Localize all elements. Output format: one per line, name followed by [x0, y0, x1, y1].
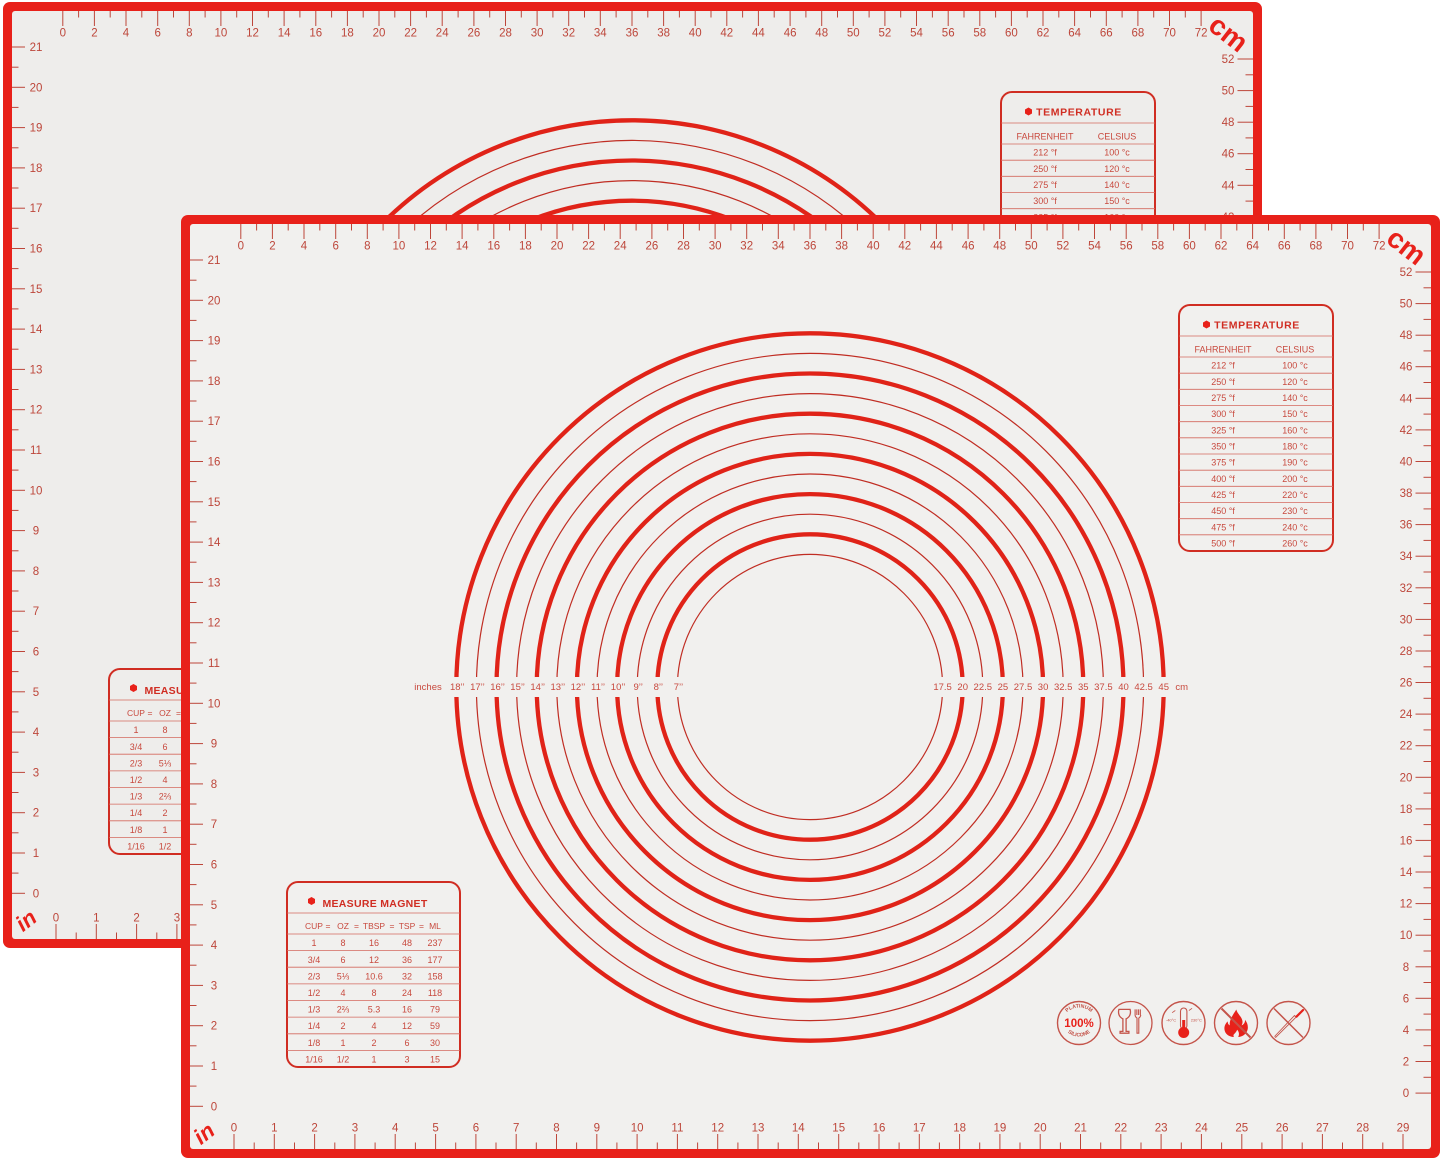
svg-text:32: 32 [402, 971, 412, 981]
svg-text:12: 12 [424, 241, 437, 253]
svg-text:14: 14 [1400, 867, 1413, 879]
svg-text:27: 27 [1316, 1123, 1329, 1135]
svg-text:0: 0 [53, 913, 59, 925]
svg-text:4: 4 [211, 940, 218, 952]
svg-text:325 °f: 325 °f [1211, 425, 1235, 435]
svg-text:6: 6 [1403, 993, 1409, 1005]
svg-text:5.3: 5.3 [368, 1005, 381, 1015]
svg-text:46: 46 [962, 241, 975, 253]
svg-text:14’’: 14’’ [530, 682, 545, 693]
svg-text:26: 26 [646, 241, 659, 253]
svg-text:20: 20 [208, 295, 221, 307]
svg-text:16: 16 [208, 457, 221, 469]
svg-text:58: 58 [1151, 241, 1164, 253]
svg-text:TEMPERATURE: TEMPERATURE [1214, 320, 1300, 332]
svg-text:3/4: 3/4 [130, 742, 143, 752]
svg-text:1/2: 1/2 [159, 842, 172, 852]
svg-text:36: 36 [1400, 520, 1413, 532]
svg-text:64: 64 [1068, 28, 1081, 40]
svg-text:18: 18 [1400, 804, 1413, 816]
svg-text:17: 17 [913, 1123, 926, 1135]
svg-text:10: 10 [208, 698, 221, 710]
svg-text:18’’: 18’’ [450, 682, 465, 693]
svg-text:6: 6 [154, 28, 160, 40]
svg-text:230 °c: 230 °c [1282, 506, 1308, 516]
svg-text:42: 42 [720, 28, 733, 40]
svg-text:8: 8 [186, 28, 192, 40]
svg-text:375 °f: 375 °f [1211, 458, 1235, 468]
svg-text:48: 48 [993, 241, 1006, 253]
svg-text:54: 54 [910, 28, 923, 40]
svg-text:2: 2 [269, 241, 275, 253]
svg-text:16: 16 [873, 1123, 886, 1135]
svg-text:240 °c: 240 °c [1282, 522, 1308, 532]
svg-text:66: 66 [1278, 241, 1291, 253]
svg-text:32: 32 [740, 241, 753, 253]
svg-text:44: 44 [930, 241, 943, 253]
svg-text:28: 28 [1356, 1123, 1369, 1135]
svg-text:6: 6 [404, 1038, 409, 1048]
svg-text:0: 0 [33, 888, 39, 900]
svg-text:38: 38 [657, 28, 670, 40]
svg-text:11: 11 [30, 445, 42, 457]
svg-text:8: 8 [162, 725, 167, 735]
svg-text:3: 3 [174, 913, 180, 925]
svg-text:9: 9 [211, 739, 217, 751]
svg-text:FAHRENHEIT: FAHRENHEIT [1016, 132, 1074, 142]
svg-text:36: 36 [402, 955, 412, 965]
svg-text:120 °c: 120 °c [1104, 164, 1130, 174]
svg-text:58: 58 [973, 28, 986, 40]
svg-text:1/8: 1/8 [308, 1038, 321, 1048]
svg-text:13: 13 [30, 364, 43, 376]
svg-text:6: 6 [473, 1123, 479, 1135]
svg-text:-40°C: -40°C [1166, 1018, 1176, 1023]
svg-text:10: 10 [1400, 930, 1413, 942]
svg-text:140 °c: 140 °c [1104, 180, 1130, 190]
svg-text:30: 30 [1400, 614, 1413, 626]
svg-text:inches: inches [414, 682, 442, 693]
svg-text:12: 12 [208, 618, 221, 630]
svg-text:160 °c: 160 °c [1282, 425, 1308, 435]
svg-text:16’’: 16’’ [490, 682, 505, 693]
svg-text:=: = [354, 921, 359, 931]
svg-text:450 °f: 450 °f [1211, 506, 1235, 516]
svg-text:5: 5 [211, 900, 217, 912]
svg-text:17’’: 17’’ [470, 682, 485, 693]
svg-text:12’’: 12’’ [571, 682, 586, 693]
svg-text:8: 8 [340, 938, 345, 948]
svg-text:25: 25 [998, 682, 1009, 693]
svg-text:13: 13 [208, 577, 221, 589]
svg-text:5: 5 [33, 687, 39, 699]
svg-text:2: 2 [133, 913, 139, 925]
svg-text:7’’: 7’’ [674, 682, 683, 693]
svg-text:1/2: 1/2 [130, 775, 143, 785]
svg-text:8: 8 [33, 566, 39, 578]
svg-text:50: 50 [847, 28, 860, 40]
svg-text:68: 68 [1310, 241, 1323, 253]
svg-text:1: 1 [371, 1055, 376, 1065]
svg-text:24: 24 [402, 988, 412, 998]
svg-text:37.5: 37.5 [1094, 682, 1113, 693]
svg-text:48: 48 [815, 28, 828, 40]
svg-text:38: 38 [1400, 488, 1413, 500]
svg-text:500 °f: 500 °f [1211, 539, 1235, 549]
svg-text:200 °c: 200 °c [1282, 474, 1308, 484]
svg-text:10: 10 [215, 28, 228, 40]
svg-text:48: 48 [1222, 117, 1235, 129]
svg-text:34: 34 [772, 241, 785, 253]
svg-text:1/2: 1/2 [308, 988, 321, 998]
svg-text:cm: cm [1175, 682, 1188, 693]
svg-text:46: 46 [1222, 149, 1235, 161]
svg-text:24: 24 [614, 241, 627, 253]
svg-text:=: = [390, 921, 395, 931]
svg-text:28: 28 [1400, 646, 1413, 658]
svg-text:12: 12 [30, 405, 43, 417]
svg-text:180 °c: 180 °c [1282, 442, 1308, 452]
svg-text:56: 56 [1120, 241, 1133, 253]
svg-text:36: 36 [804, 241, 817, 253]
svg-text:7: 7 [211, 819, 217, 831]
svg-text:34: 34 [594, 28, 607, 40]
svg-text:0: 0 [211, 1101, 217, 1113]
svg-text:10’’: 10’’ [611, 682, 626, 693]
svg-text:230°C: 230°C [1191, 1018, 1202, 1023]
svg-text:30: 30 [1038, 682, 1049, 693]
svg-text:7: 7 [33, 606, 39, 618]
svg-text:62: 62 [1037, 28, 1050, 40]
svg-text:CELSIUS: CELSIUS [1276, 345, 1315, 355]
svg-text:6: 6 [211, 860, 217, 872]
svg-text:64: 64 [1246, 241, 1259, 253]
svg-text:32: 32 [562, 28, 575, 40]
svg-text:475 °f: 475 °f [1211, 522, 1235, 532]
svg-text:4: 4 [301, 241, 308, 253]
svg-text:42: 42 [1400, 425, 1413, 437]
svg-text:1: 1 [162, 825, 167, 835]
svg-text:14: 14 [456, 241, 469, 253]
svg-text:8’’: 8’’ [654, 682, 663, 693]
svg-text:26: 26 [1276, 1123, 1289, 1135]
svg-text:8: 8 [553, 1123, 559, 1135]
svg-text:18: 18 [953, 1123, 966, 1135]
svg-text:40: 40 [867, 241, 880, 253]
svg-text:24: 24 [1195, 1123, 1208, 1135]
svg-text:1/3: 1/3 [130, 792, 143, 802]
svg-text:68: 68 [1132, 28, 1145, 40]
svg-text:275 °f: 275 °f [1033, 180, 1057, 190]
svg-text:79: 79 [430, 1005, 440, 1015]
svg-text:50: 50 [1222, 86, 1235, 98]
svg-text:29: 29 [1397, 1123, 1410, 1135]
svg-text:52: 52 [1057, 241, 1070, 253]
svg-text:CUP: CUP [305, 921, 323, 931]
svg-text:40: 40 [689, 28, 702, 40]
svg-text:2/3: 2/3 [308, 971, 321, 981]
svg-text:5: 5 [432, 1123, 438, 1135]
svg-text:10: 10 [631, 1123, 644, 1135]
svg-text:3/4: 3/4 [308, 955, 321, 965]
svg-text:19: 19 [208, 336, 221, 348]
svg-text:100 °c: 100 °c [1282, 361, 1308, 371]
svg-text:140 °c: 140 °c [1282, 393, 1308, 403]
svg-text:18: 18 [30, 163, 43, 175]
svg-text:27.5: 27.5 [1014, 682, 1033, 693]
svg-text:11: 11 [671, 1123, 683, 1135]
svg-text:17: 17 [30, 203, 43, 215]
svg-text:9: 9 [594, 1123, 600, 1135]
svg-text:38: 38 [835, 241, 848, 253]
svg-text:0: 0 [231, 1123, 237, 1135]
svg-text:TBSP: TBSP [363, 921, 386, 931]
svg-text:118: 118 [428, 988, 442, 998]
svg-text:237: 237 [427, 938, 442, 948]
svg-text:4: 4 [33, 727, 40, 739]
svg-text:44: 44 [1400, 393, 1413, 405]
svg-text:158: 158 [427, 971, 442, 981]
svg-text:1/4: 1/4 [130, 808, 143, 818]
svg-text:10: 10 [393, 241, 406, 253]
svg-text:60: 60 [1005, 28, 1018, 40]
svg-text:15: 15 [30, 284, 43, 296]
svg-text:4: 4 [340, 988, 345, 998]
svg-text:2: 2 [1403, 1057, 1409, 1069]
svg-text:18: 18 [341, 28, 354, 40]
svg-text:70: 70 [1163, 28, 1176, 40]
svg-text:28: 28 [677, 241, 690, 253]
svg-text:250 °f: 250 °f [1033, 164, 1057, 174]
svg-text:23: 23 [1155, 1123, 1168, 1135]
svg-text:3: 3 [352, 1123, 358, 1135]
svg-text:1: 1 [271, 1123, 277, 1135]
svg-text:6: 6 [340, 955, 345, 965]
svg-text:OZ: OZ [337, 921, 349, 931]
svg-text:42.5: 42.5 [1134, 682, 1153, 693]
svg-text:190 °c: 190 °c [1282, 458, 1308, 468]
svg-text:4: 4 [1403, 1025, 1410, 1037]
svg-text:18: 18 [208, 376, 221, 388]
svg-text:21: 21 [30, 42, 43, 54]
svg-text:3: 3 [33, 767, 39, 779]
svg-text:2⅔: 2⅔ [159, 792, 172, 802]
svg-text:10: 10 [30, 485, 43, 497]
svg-text:1: 1 [340, 1038, 345, 1048]
svg-text:30: 30 [430, 1038, 440, 1048]
svg-text:150 °c: 150 °c [1104, 196, 1130, 206]
svg-text:15: 15 [208, 497, 221, 509]
svg-text:59: 59 [430, 1021, 440, 1031]
svg-text:32.5: 32.5 [1054, 682, 1073, 693]
svg-text:25: 25 [1235, 1123, 1248, 1135]
svg-text:22: 22 [582, 241, 595, 253]
svg-text:15: 15 [832, 1123, 845, 1135]
svg-text:30: 30 [709, 241, 722, 253]
svg-text:9’’: 9’’ [634, 682, 643, 693]
svg-text:2: 2 [162, 808, 167, 818]
svg-text:14: 14 [208, 537, 221, 549]
svg-text:13: 13 [752, 1123, 765, 1135]
svg-text:13’’: 13’’ [550, 682, 565, 693]
svg-text:46: 46 [1400, 362, 1413, 374]
svg-text:8: 8 [211, 779, 217, 791]
svg-text:14: 14 [792, 1123, 805, 1135]
svg-text:19: 19 [30, 123, 43, 135]
svg-text:52: 52 [879, 28, 892, 40]
svg-text:22: 22 [1114, 1123, 1127, 1135]
svg-text:54: 54 [1088, 241, 1101, 253]
svg-text:2: 2 [340, 1021, 345, 1031]
svg-text:22: 22 [1400, 741, 1413, 753]
svg-text:1/16: 1/16 [305, 1055, 323, 1065]
svg-text:9: 9 [33, 526, 39, 538]
svg-text:40: 40 [1118, 682, 1129, 693]
svg-text:1: 1 [211, 1061, 217, 1073]
svg-text:TEMPERATURE: TEMPERATURE [1036, 107, 1122, 119]
svg-text:300 °f: 300 °f [1211, 409, 1235, 419]
svg-text:44: 44 [1222, 180, 1235, 192]
svg-text:250 °f: 250 °f [1211, 377, 1235, 387]
svg-text:20: 20 [551, 241, 564, 253]
svg-text:260 °c: 260 °c [1282, 539, 1308, 549]
svg-text:35: 35 [1078, 682, 1089, 693]
svg-text:22: 22 [404, 28, 417, 40]
svg-text:6: 6 [332, 241, 338, 253]
svg-text:30: 30 [531, 28, 544, 40]
svg-text:2: 2 [91, 28, 97, 40]
svg-text:220 °c: 220 °c [1282, 490, 1308, 500]
svg-text:=: = [326, 921, 331, 931]
svg-text:4: 4 [371, 1021, 376, 1031]
svg-text:8: 8 [364, 241, 370, 253]
svg-text:2: 2 [211, 1021, 217, 1033]
svg-text:1: 1 [33, 848, 39, 860]
svg-text:12: 12 [369, 955, 379, 965]
svg-text:12: 12 [1400, 899, 1413, 911]
svg-text:42: 42 [898, 241, 911, 253]
svg-text:45: 45 [1158, 682, 1169, 693]
svg-text:19: 19 [994, 1123, 1007, 1135]
svg-text:0: 0 [1403, 1088, 1409, 1100]
svg-text:ML: ML [429, 921, 441, 931]
svg-text:15: 15 [430, 1055, 440, 1065]
svg-text:425 °f: 425 °f [1211, 490, 1235, 500]
svg-text:16: 16 [1400, 835, 1413, 847]
svg-text:22.5: 22.5 [974, 682, 993, 693]
svg-text:1/2: 1/2 [337, 1055, 350, 1065]
svg-text:3: 3 [404, 1055, 409, 1065]
svg-text:21: 21 [208, 255, 221, 267]
svg-text:212 °f: 212 °f [1033, 148, 1057, 158]
svg-text:34: 34 [1400, 551, 1413, 563]
svg-text:24: 24 [436, 28, 449, 40]
svg-text:14: 14 [30, 324, 43, 336]
svg-text:12: 12 [246, 28, 259, 40]
svg-text:11’’: 11’’ [591, 682, 605, 693]
svg-text:100 °c: 100 °c [1104, 148, 1130, 158]
svg-text:8: 8 [1403, 962, 1409, 974]
svg-text:46: 46 [784, 28, 797, 40]
svg-text:1: 1 [133, 725, 138, 735]
svg-text:4: 4 [162, 775, 167, 785]
svg-text:18: 18 [519, 241, 532, 253]
svg-text:16: 16 [402, 1005, 412, 1015]
svg-text:1/4: 1/4 [308, 1021, 321, 1031]
svg-text:1/16: 1/16 [127, 842, 145, 852]
svg-text:17: 17 [208, 416, 221, 428]
svg-text:32: 32 [1400, 583, 1413, 595]
svg-text:16: 16 [30, 244, 43, 256]
svg-text:350 °f: 350 °f [1211, 442, 1235, 452]
svg-text:20: 20 [30, 82, 43, 94]
svg-text:36: 36 [626, 28, 639, 40]
svg-text:11: 11 [208, 658, 220, 670]
svg-text:48: 48 [402, 938, 412, 948]
svg-text:50: 50 [1400, 299, 1413, 311]
svg-text:300 °f: 300 °f [1033, 196, 1057, 206]
svg-text:275 °f: 275 °f [1211, 393, 1235, 403]
svg-text:50: 50 [1025, 241, 1038, 253]
svg-text:70: 70 [1341, 241, 1354, 253]
svg-text:16: 16 [487, 241, 500, 253]
svg-text:0: 0 [60, 28, 66, 40]
svg-text:2: 2 [311, 1123, 317, 1135]
svg-text:=: = [419, 921, 424, 931]
svg-text:16: 16 [369, 938, 379, 948]
svg-text:48: 48 [1400, 330, 1413, 342]
svg-text:0: 0 [238, 241, 244, 253]
svg-text:5⅓: 5⅓ [159, 758, 172, 768]
svg-text:20: 20 [1034, 1123, 1047, 1135]
svg-text:6: 6 [33, 647, 39, 659]
svg-text:212 °f: 212 °f [1211, 361, 1235, 371]
svg-text:400 °f: 400 °f [1211, 474, 1235, 484]
svg-text:62: 62 [1215, 241, 1228, 253]
svg-text:15’’: 15’’ [510, 682, 525, 693]
svg-text:2: 2 [371, 1038, 376, 1048]
svg-text:MEASURE MAGNET: MEASURE MAGNET [322, 898, 427, 910]
svg-text:=: = [148, 708, 153, 718]
svg-text:56: 56 [942, 28, 955, 40]
svg-text:26: 26 [1400, 678, 1413, 690]
svg-text:16: 16 [309, 28, 322, 40]
svg-text:10.6: 10.6 [365, 971, 383, 981]
svg-text:TSP: TSP [399, 921, 416, 931]
svg-text:7: 7 [513, 1123, 519, 1135]
svg-text:60: 60 [1183, 241, 1196, 253]
svg-text:1/8: 1/8 [130, 825, 143, 835]
svg-text:21: 21 [1074, 1123, 1087, 1135]
svg-text:4: 4 [392, 1123, 399, 1135]
svg-text:177: 177 [427, 955, 442, 965]
svg-text:=: = [176, 708, 181, 718]
svg-text:44: 44 [752, 28, 765, 40]
svg-text:1/3: 1/3 [308, 1005, 321, 1015]
svg-text:28: 28 [499, 28, 512, 40]
svg-text:100%: 100% [1064, 1018, 1093, 1030]
svg-text:CELSIUS: CELSIUS [1098, 132, 1137, 142]
svg-text:1: 1 [311, 938, 316, 948]
svg-text:2: 2 [33, 808, 39, 820]
svg-text:12: 12 [711, 1123, 724, 1135]
svg-text:150 °c: 150 °c [1282, 409, 1308, 419]
svg-text:20: 20 [373, 28, 386, 40]
svg-text:40: 40 [1400, 457, 1413, 469]
svg-text:12: 12 [402, 1021, 412, 1031]
svg-text:26: 26 [468, 28, 481, 40]
svg-text:3: 3 [211, 980, 217, 992]
